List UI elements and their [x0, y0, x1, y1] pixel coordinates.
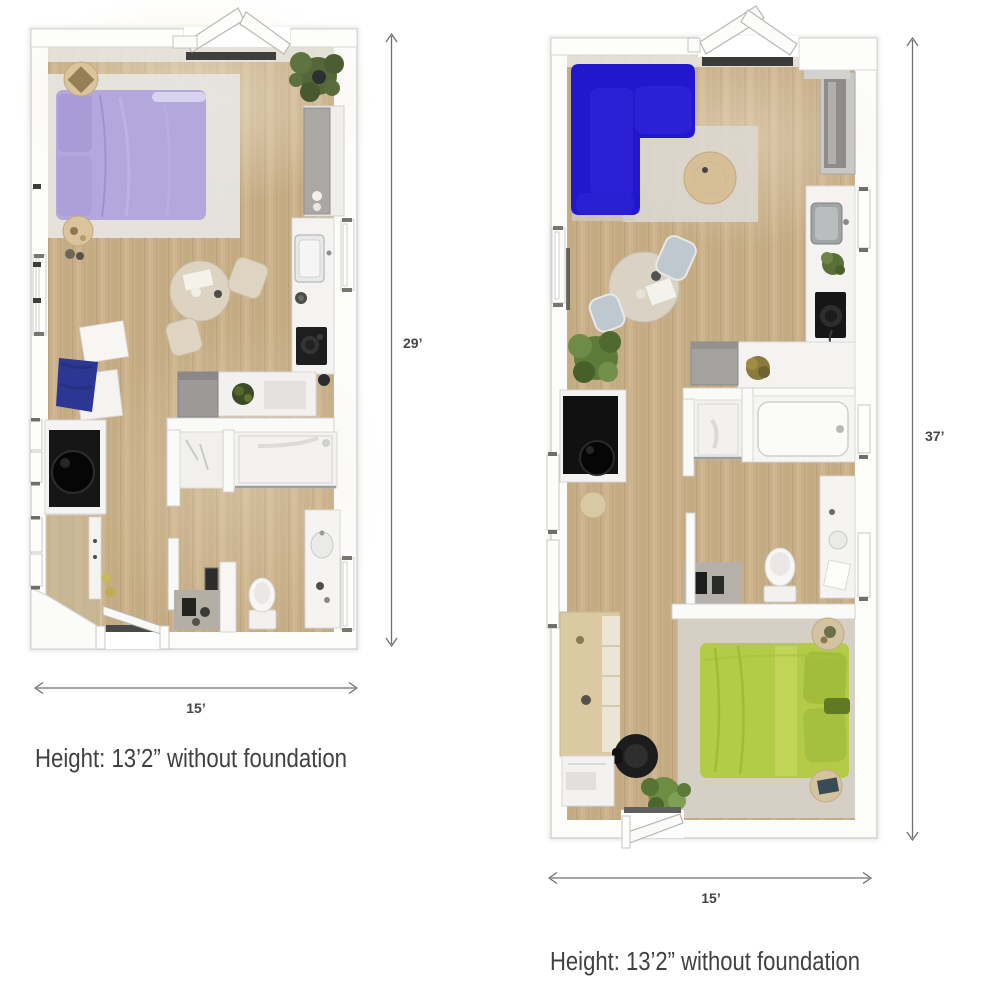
svg-text:Height: 13’2” without foundati: Height: 13’2” without foundation [35, 745, 347, 773]
svg-text:37’: 37’ [925, 428, 944, 444]
svg-text:15’: 15’ [701, 890, 720, 906]
svg-text:Height: 13’2” without foundati: Height: 13’2” without foundation [550, 948, 860, 976]
svg-text:29’: 29’ [403, 335, 422, 351]
svg-text:15’: 15’ [186, 700, 205, 716]
